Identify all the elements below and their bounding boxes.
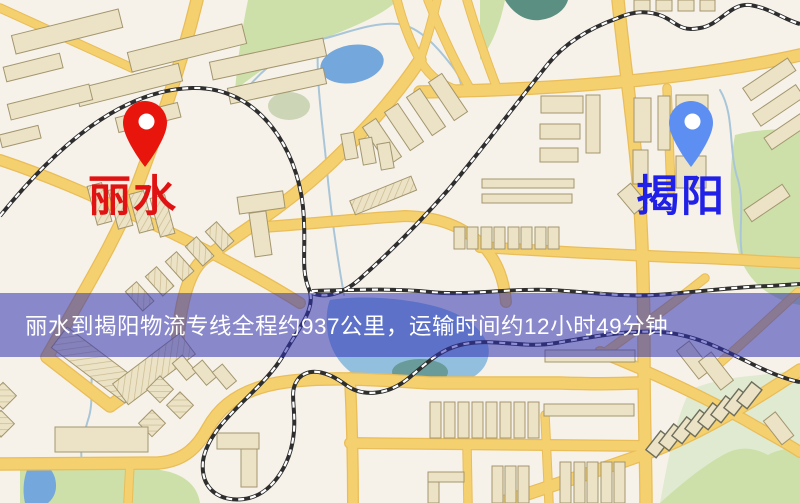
map-marker-icon: [668, 100, 714, 168]
origin-pin[interactable]: [122, 100, 168, 168]
map-canvas[interactable]: 丽水 揭阳 丽水到揭阳物流专线全程约937公里，运输时间约12小时49分钟.: [0, 0, 800, 503]
park-hill: [268, 92, 310, 120]
destination-label: 揭阳: [636, 176, 726, 219]
route-info-banner: 丽水到揭阳物流专线全程约937公里，运输时间约12小时49分钟.: [0, 293, 800, 357]
map-marker-icon: [122, 100, 168, 168]
destination-pin[interactable]: [668, 100, 714, 168]
map-tiles: [0, 0, 800, 503]
origin-label: 丽水: [88, 176, 178, 219]
route-info-text: 丽水到揭阳物流专线全程约937公里，运输时间约12小时49分钟.: [0, 309, 675, 341]
